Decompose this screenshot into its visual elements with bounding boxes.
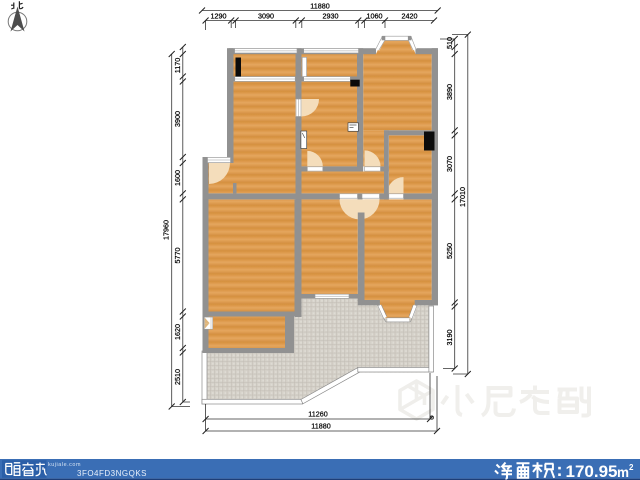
svg-text:17960: 17960 <box>162 220 171 240</box>
svg-text:2420: 2420 <box>402 12 418 21</box>
svg-text:m: m <box>617 465 629 480</box>
svg-text:510: 510 <box>445 37 454 49</box>
svg-text:3900: 3900 <box>173 111 182 127</box>
svg-text:3190: 3190 <box>445 330 454 346</box>
svg-text:3070: 3070 <box>445 156 454 172</box>
svg-text:5770: 5770 <box>173 248 182 264</box>
svg-text:11880: 11880 <box>310 2 329 11</box>
svg-text:11260: 11260 <box>308 410 327 419</box>
svg-text:3090: 3090 <box>258 12 274 21</box>
svg-text:1600: 1600 <box>173 170 182 186</box>
svg-text:11880: 11880 <box>311 422 330 431</box>
svg-text:2: 2 <box>629 463 634 472</box>
svg-text:17010: 17010 <box>458 187 467 207</box>
svg-text:5250: 5250 <box>445 243 454 259</box>
svg-text:1290: 1290 <box>211 12 227 21</box>
svg-text:170.95: 170.95 <box>566 462 618 480</box>
svg-text:1170: 1170 <box>173 58 182 73</box>
svg-text:3FO4FD3NGQKS: 3FO4FD3NGQKS <box>77 469 147 478</box>
svg-text:2510: 2510 <box>173 369 182 385</box>
svg-text:3890: 3890 <box>445 84 454 100</box>
svg-text:1060: 1060 <box>367 12 383 21</box>
svg-text:kujiale.com: kujiale.com <box>48 462 81 468</box>
svg-text:2930: 2930 <box>323 12 339 21</box>
svg-text:1620: 1620 <box>173 324 182 340</box>
